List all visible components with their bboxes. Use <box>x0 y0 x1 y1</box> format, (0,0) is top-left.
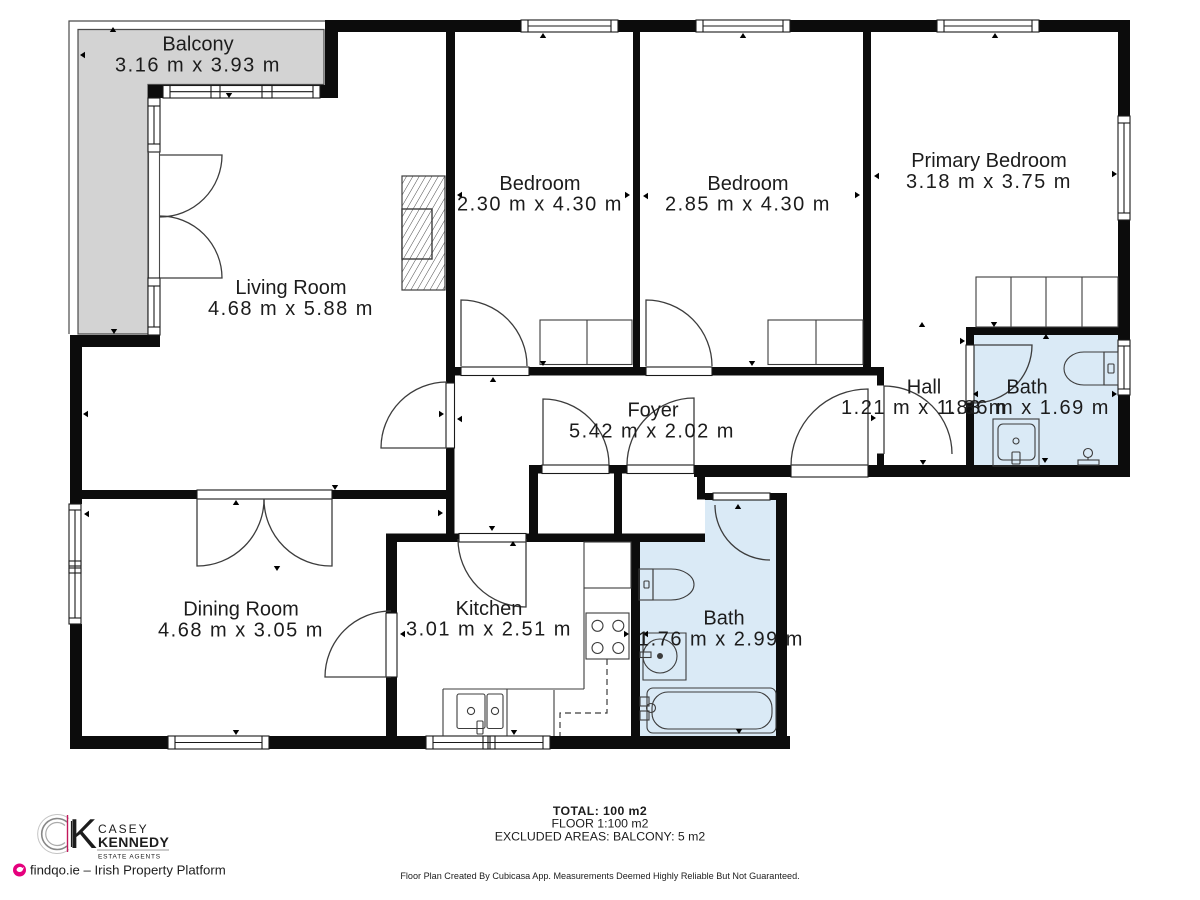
svg-text:FLOOR 1:100 m2: FLOOR 1:100 m2 <box>551 817 648 831</box>
svg-text:4.68 m x 3.05 m: 4.68 m x 3.05 m <box>158 620 324 642</box>
svg-text:Bath: Bath <box>1006 377 1047 399</box>
svg-text:2.30 m x 4.30 m: 2.30 m x 4.30 m <box>457 194 623 216</box>
svg-text:Living Room: Living Room <box>235 277 346 299</box>
svg-text:Bedroom: Bedroom <box>499 173 580 195</box>
svg-text:EXCLUDED AREAS: BALCONY: 5 m2: EXCLUDED AREAS: BALCONY: 5 m2 <box>495 830 706 844</box>
svg-text:3.16 m x 3.93 m: 3.16 m x 3.93 m <box>115 55 281 77</box>
svg-text:3.18 m x 3.75 m: 3.18 m x 3.75 m <box>906 171 1072 193</box>
svg-text:2.85 m x 4.30 m: 2.85 m x 4.30 m <box>665 194 831 216</box>
svg-text:Floor Plan Created By Cubicasa: Floor Plan Created By Cubicasa App. Meas… <box>400 871 799 881</box>
svg-text:Dining Room: Dining Room <box>183 599 299 621</box>
svg-text:Hall: Hall <box>907 377 941 399</box>
svg-text:Bedroom: Bedroom <box>707 173 788 195</box>
svg-text:ESTATE AGENTS: ESTATE AGENTS <box>98 854 161 861</box>
svg-text:findqo.ie – Irish Property Pla: findqo.ie – Irish Property Platform <box>30 863 226 878</box>
svg-text:Foyer: Foyer <box>627 400 678 422</box>
svg-text:K: K <box>69 810 97 857</box>
svg-text:KENNEDY: KENNEDY <box>98 834 170 850</box>
svg-text:1.86 m x 1.69 m: 1.86 m x 1.69 m <box>944 397 1110 419</box>
svg-text:3.01 m x 2.51 m: 3.01 m x 2.51 m <box>406 619 572 641</box>
svg-text:Bath: Bath <box>703 608 744 630</box>
svg-text:5.42 m x 2.02 m: 5.42 m x 2.02 m <box>569 421 735 443</box>
svg-text:1.76 m x 2.99 m: 1.76 m x 2.99 m <box>638 629 804 651</box>
svg-text:Kitchen: Kitchen <box>456 598 523 620</box>
svg-text:Balcony: Balcony <box>162 34 233 56</box>
svg-text:Primary Bedroom: Primary Bedroom <box>911 150 1067 172</box>
svg-text:4.68 m x 5.88 m: 4.68 m x 5.88 m <box>208 298 374 320</box>
